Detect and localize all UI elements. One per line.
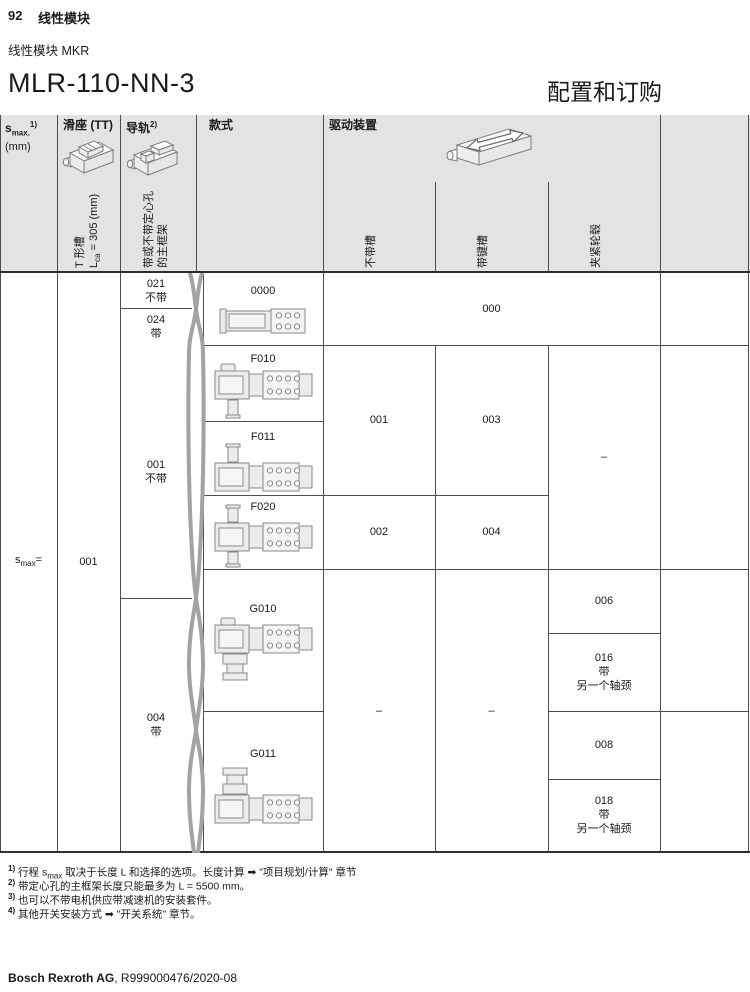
style-label-g011: G011	[203, 747, 323, 761]
cell-rail-024: 024带	[120, 308, 192, 345]
cell-drive-006: 006	[548, 569, 660, 633]
cell-drive-g-keyway-dash: –	[435, 569, 548, 853]
grid-line	[196, 115, 197, 273]
page-footer: Bosch Rexroth AG, R999000476/2020-08	[8, 971, 237, 985]
module-drawing-0000	[219, 304, 307, 338]
chapter-title: 线性模块	[38, 8, 90, 27]
carriage-tslot-label: T 形槽	[73, 194, 87, 268]
drive-subcolumn-label-clamping-hub: 夹紧轮毂	[589, 224, 603, 268]
cell-drive-001: 001	[323, 345, 435, 495]
cell-rail-004: 004带	[120, 598, 192, 851]
carriage-isometric-icon	[63, 133, 117, 179]
module-drawing-g011	[213, 765, 313, 827]
style-label-g010: G010	[203, 602, 323, 616]
drive-subcolumn-label-no-groove: 不带槽	[364, 235, 378, 268]
module-drawing-g010	[213, 616, 313, 682]
drive-arrow-isometric-icon	[445, 123, 541, 175]
module-drawing-f010	[213, 362, 313, 420]
rail-centering-label: 带或不带定心孔	[142, 191, 156, 268]
section-title: 配置和订购	[547, 73, 662, 107]
cell-drive-008: 008	[548, 711, 660, 779]
carriage-vertical-label: T 形槽 Lca = 305 (mm)	[73, 194, 105, 268]
column-header-smax: smax.1) (mm)	[5, 118, 37, 154]
grid-line	[435, 182, 436, 273]
page-number: 92	[8, 8, 22, 23]
cell-drive-f-clamping-dash: –	[548, 345, 660, 569]
cell-drive-002: 002	[323, 495, 435, 569]
smax-header-unit: (mm)	[5, 140, 37, 154]
rail-isometric-icon	[127, 133, 181, 179]
column-header-style: 款式	[209, 118, 233, 132]
grid-line	[203, 711, 323, 712]
column-header-drive: 驱动装置	[329, 118, 377, 132]
cell-drive-018: 018 带 另一个轴颈	[548, 779, 660, 851]
cell-rail-021: 021不带	[120, 273, 192, 308]
table-border-right	[748, 115, 749, 853]
footnote-4: 4) 其他开关安装方式 ➡ "开关系统" 章节。	[8, 904, 201, 926]
rail-frame-label: 的主框架	[156, 191, 170, 268]
rail-vertical-label: 带或不带定心孔 的主框架	[142, 191, 170, 268]
cell-carriage-value: 001	[57, 273, 120, 851]
footer-document-number: , R999000476/2020-08	[114, 971, 237, 985]
cell-rail-001: 001不带	[120, 345, 192, 598]
cell-drive-g-no-groove-dash: –	[323, 569, 435, 853]
smax-header-symbol: smax.1)	[5, 118, 37, 140]
module-drawing-f020	[213, 504, 313, 568]
page-title: MLR-110-NN-3	[8, 68, 195, 99]
cell-drive-003: 003	[435, 345, 548, 495]
style-label-0000: 0000	[203, 284, 323, 298]
drive-subcolumn-label-keyway: 带键槽	[476, 235, 490, 268]
carriage-lca-label: Lca = 305 (mm)	[87, 194, 105, 268]
catalog-page: 92 线性模块 线性模块 MKR MLR-110-NN-3 配置和订购	[0, 0, 750, 992]
cell-smax-value: smax=	[0, 273, 57, 851]
cell-drive-016: 016 带 另一个轴颈	[548, 633, 660, 711]
grid-line	[548, 182, 549, 273]
module-drawing-f011	[213, 440, 313, 494]
cell-drive-000: 000	[323, 273, 660, 345]
grid-line	[660, 115, 661, 853]
grid-line	[203, 421, 323, 422]
column-header-carriage: 滑座 (TT)	[63, 118, 113, 132]
footer-company: Bosch Rexroth AG	[8, 971, 114, 985]
product-line: 线性模块 MKR	[8, 40, 89, 59]
cell-drive-004: 004	[435, 495, 548, 569]
